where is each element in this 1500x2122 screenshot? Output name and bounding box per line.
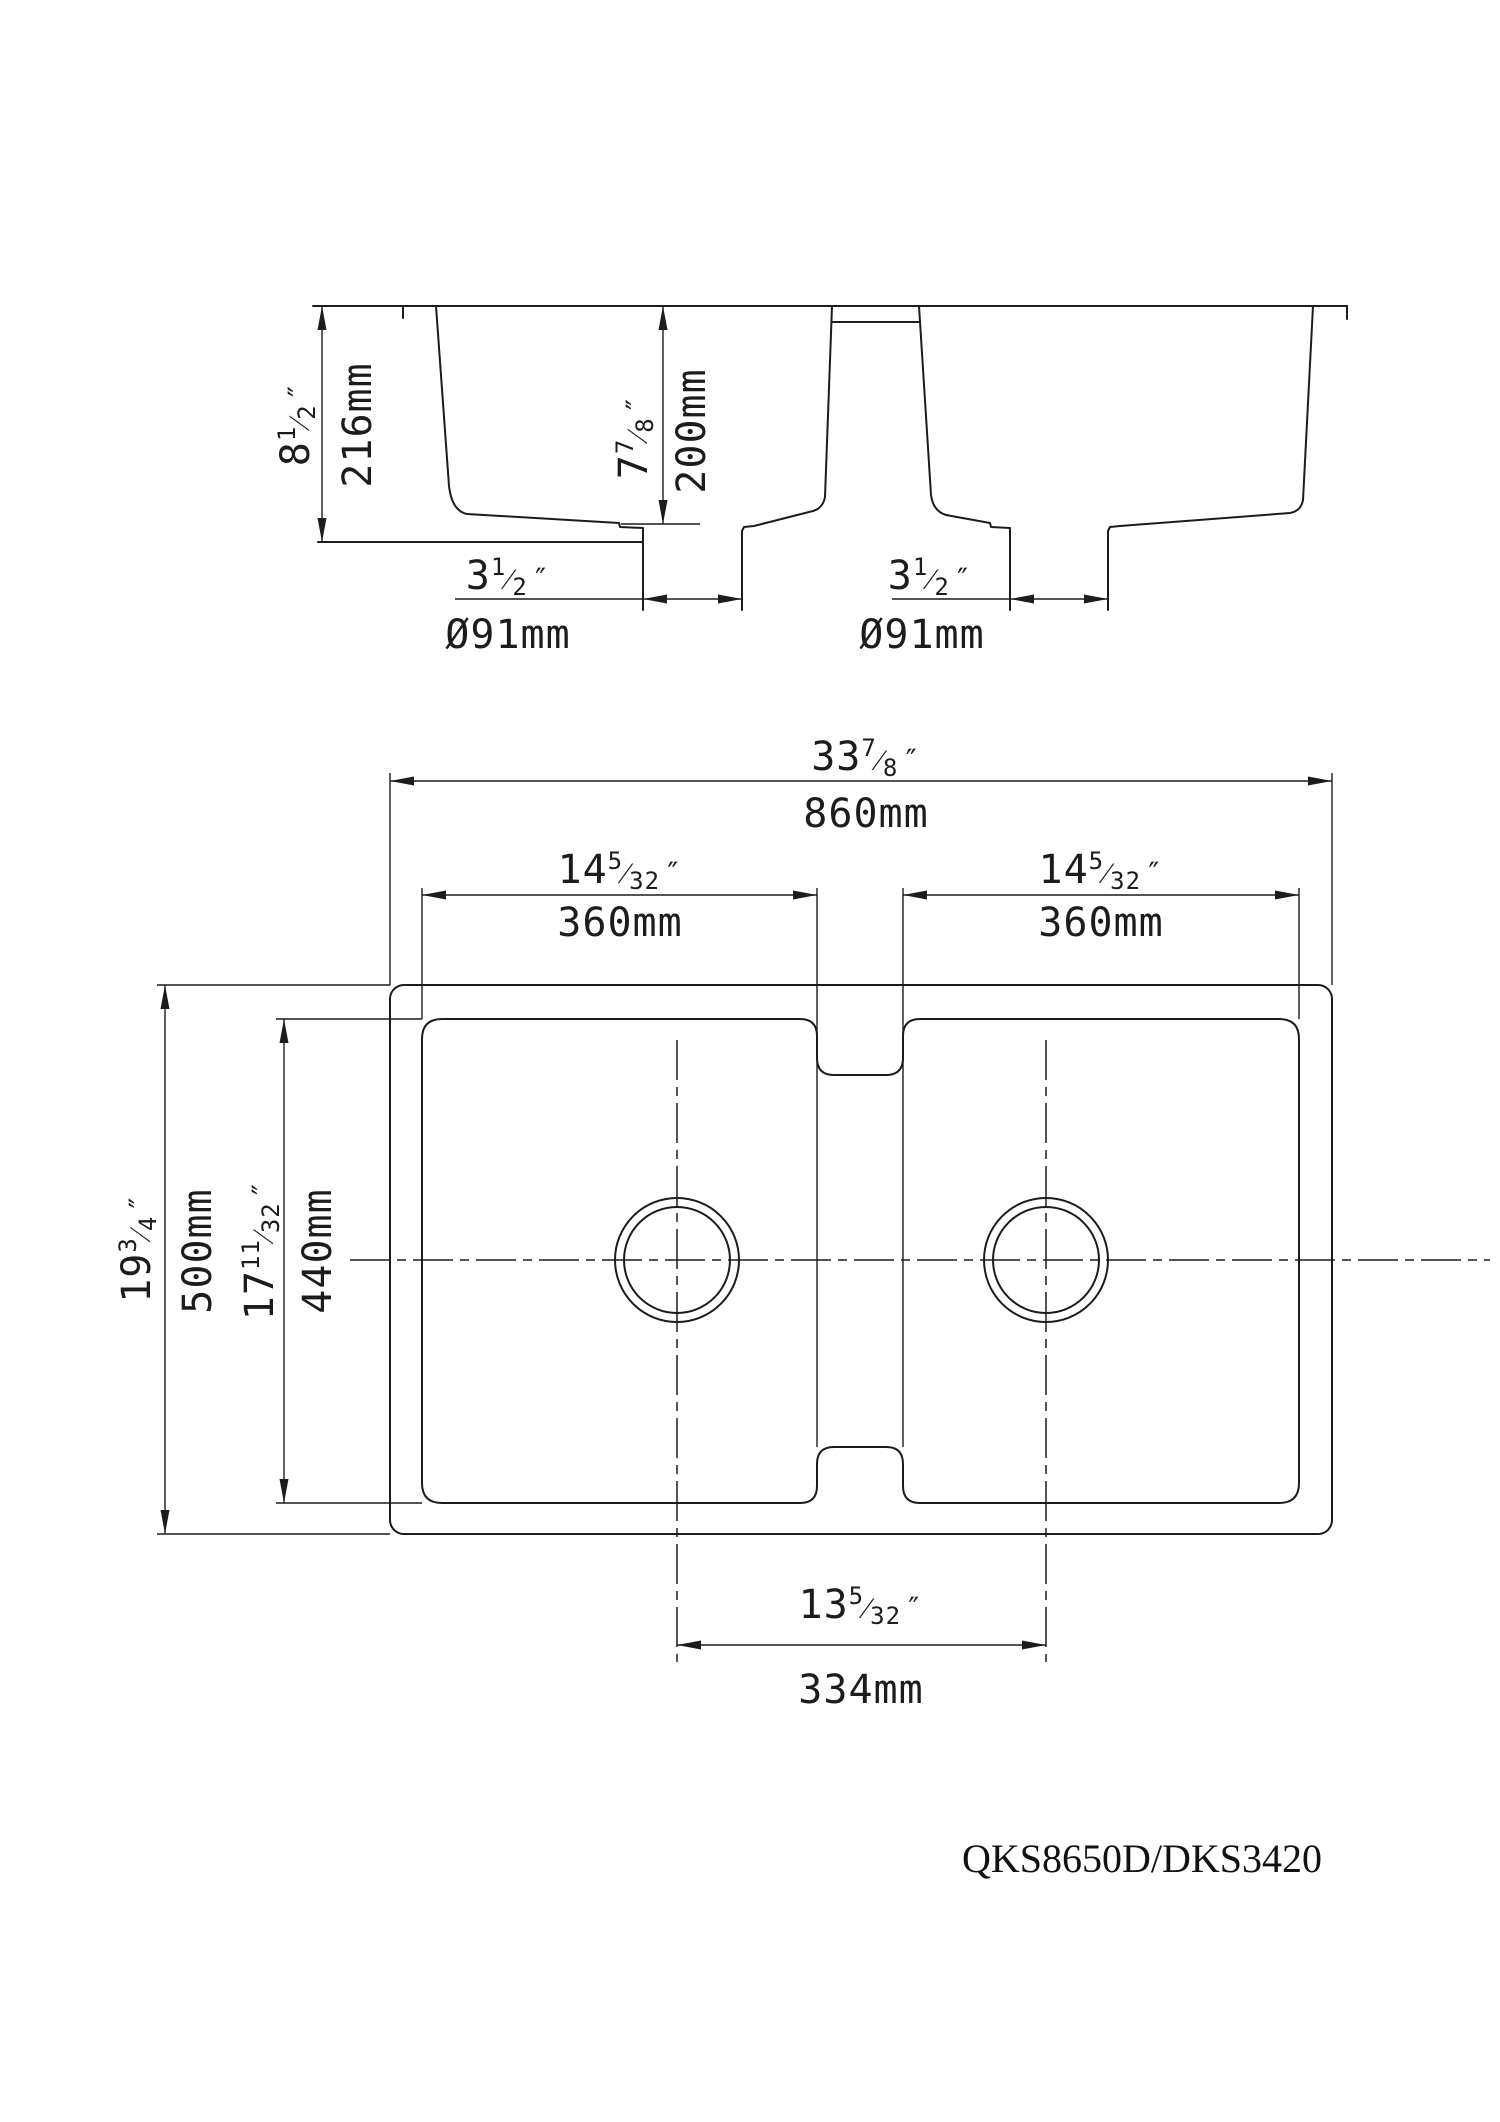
plan-view: 337⁄8″ 860mm 145⁄32″ 360mm 145⁄32″ 360mm…: [114, 734, 1490, 1713]
dim-overall-width-inch: 337⁄8″: [811, 734, 921, 782]
dim-overall-depth-mm: 500mm: [175, 1188, 221, 1313]
dim-bowl-length-mm: 440mm: [295, 1188, 341, 1313]
dim-bowl-width-left: 145⁄32″ 360mm: [422, 847, 817, 946]
dim-overall-height: 81⁄2″ 216mm: [273, 306, 381, 542]
dim-drain-left-inch: 31⁄2″: [466, 553, 550, 601]
dim-drain-spacing-inch: 135⁄32″: [798, 1582, 923, 1630]
dim-overall-depth: 193⁄4″ 500mm: [114, 985, 221, 1534]
dim-bowl-length: 1711⁄32″ 440mm: [237, 1019, 341, 1503]
dim-bowl-length-inch: 1711⁄32″: [237, 1180, 285, 1320]
dim-drain-spacing-mm: 334mm: [798, 1667, 923, 1713]
dim-drain-left-mm: Ø91mm: [445, 612, 570, 658]
dim-bowl-width-right-mm: 360mm: [1038, 900, 1163, 946]
sink-dimension-drawing: 81⁄2″ 216mm 77⁄8″ 200mm 31⁄2″ Ø91mm 31⁄2…: [0, 0, 1500, 2122]
dim-bowl-depth-inch: 77⁄8″: [611, 395, 659, 479]
dim-drain-spacing: 135⁄32″ 334mm: [677, 1582, 1046, 1713]
model-number: QKS8650D/DKS3420: [962, 1836, 1322, 1881]
dim-overall-depth-inch: 193⁄4″: [114, 1193, 162, 1303]
dim-bowl-width-left-inch: 145⁄32″: [557, 847, 682, 895]
dim-bowl-width-right-inch: 145⁄32″: [1038, 847, 1163, 895]
dim-overall-height-mm: 216mm: [335, 362, 381, 487]
dim-bowl-width-left-mm: 360mm: [557, 900, 682, 946]
dim-drain-right-inch: 31⁄2″: [888, 553, 972, 601]
dim-drain-right: 31⁄2″ Ø91mm: [859, 553, 1108, 658]
right-bowl-profile: [1108, 306, 1313, 610]
left-drain-to-divider-profile: [742, 306, 832, 610]
inner-bowls-outline: [422, 1019, 1299, 1503]
dim-bowl-depth-mm: 200mm: [669, 368, 715, 493]
dim-drain-left: 31⁄2″ Ø91mm: [445, 553, 742, 658]
dim-overall-height-inch: 81⁄2″: [273, 382, 321, 466]
cross-section-view: 81⁄2″ 216mm 77⁄8″ 200mm 31⁄2″ Ø91mm 31⁄2…: [273, 306, 1347, 658]
dim-overall-width-mm: 860mm: [803, 791, 928, 837]
dim-overall-width: 337⁄8″ 860mm: [390, 734, 1332, 837]
dim-drain-right-mm: Ø91mm: [859, 612, 984, 658]
dim-bowl-width-right: 145⁄32″ 360mm: [903, 847, 1299, 946]
dim-bowl-depth: 77⁄8″ 200mm: [611, 306, 715, 524]
